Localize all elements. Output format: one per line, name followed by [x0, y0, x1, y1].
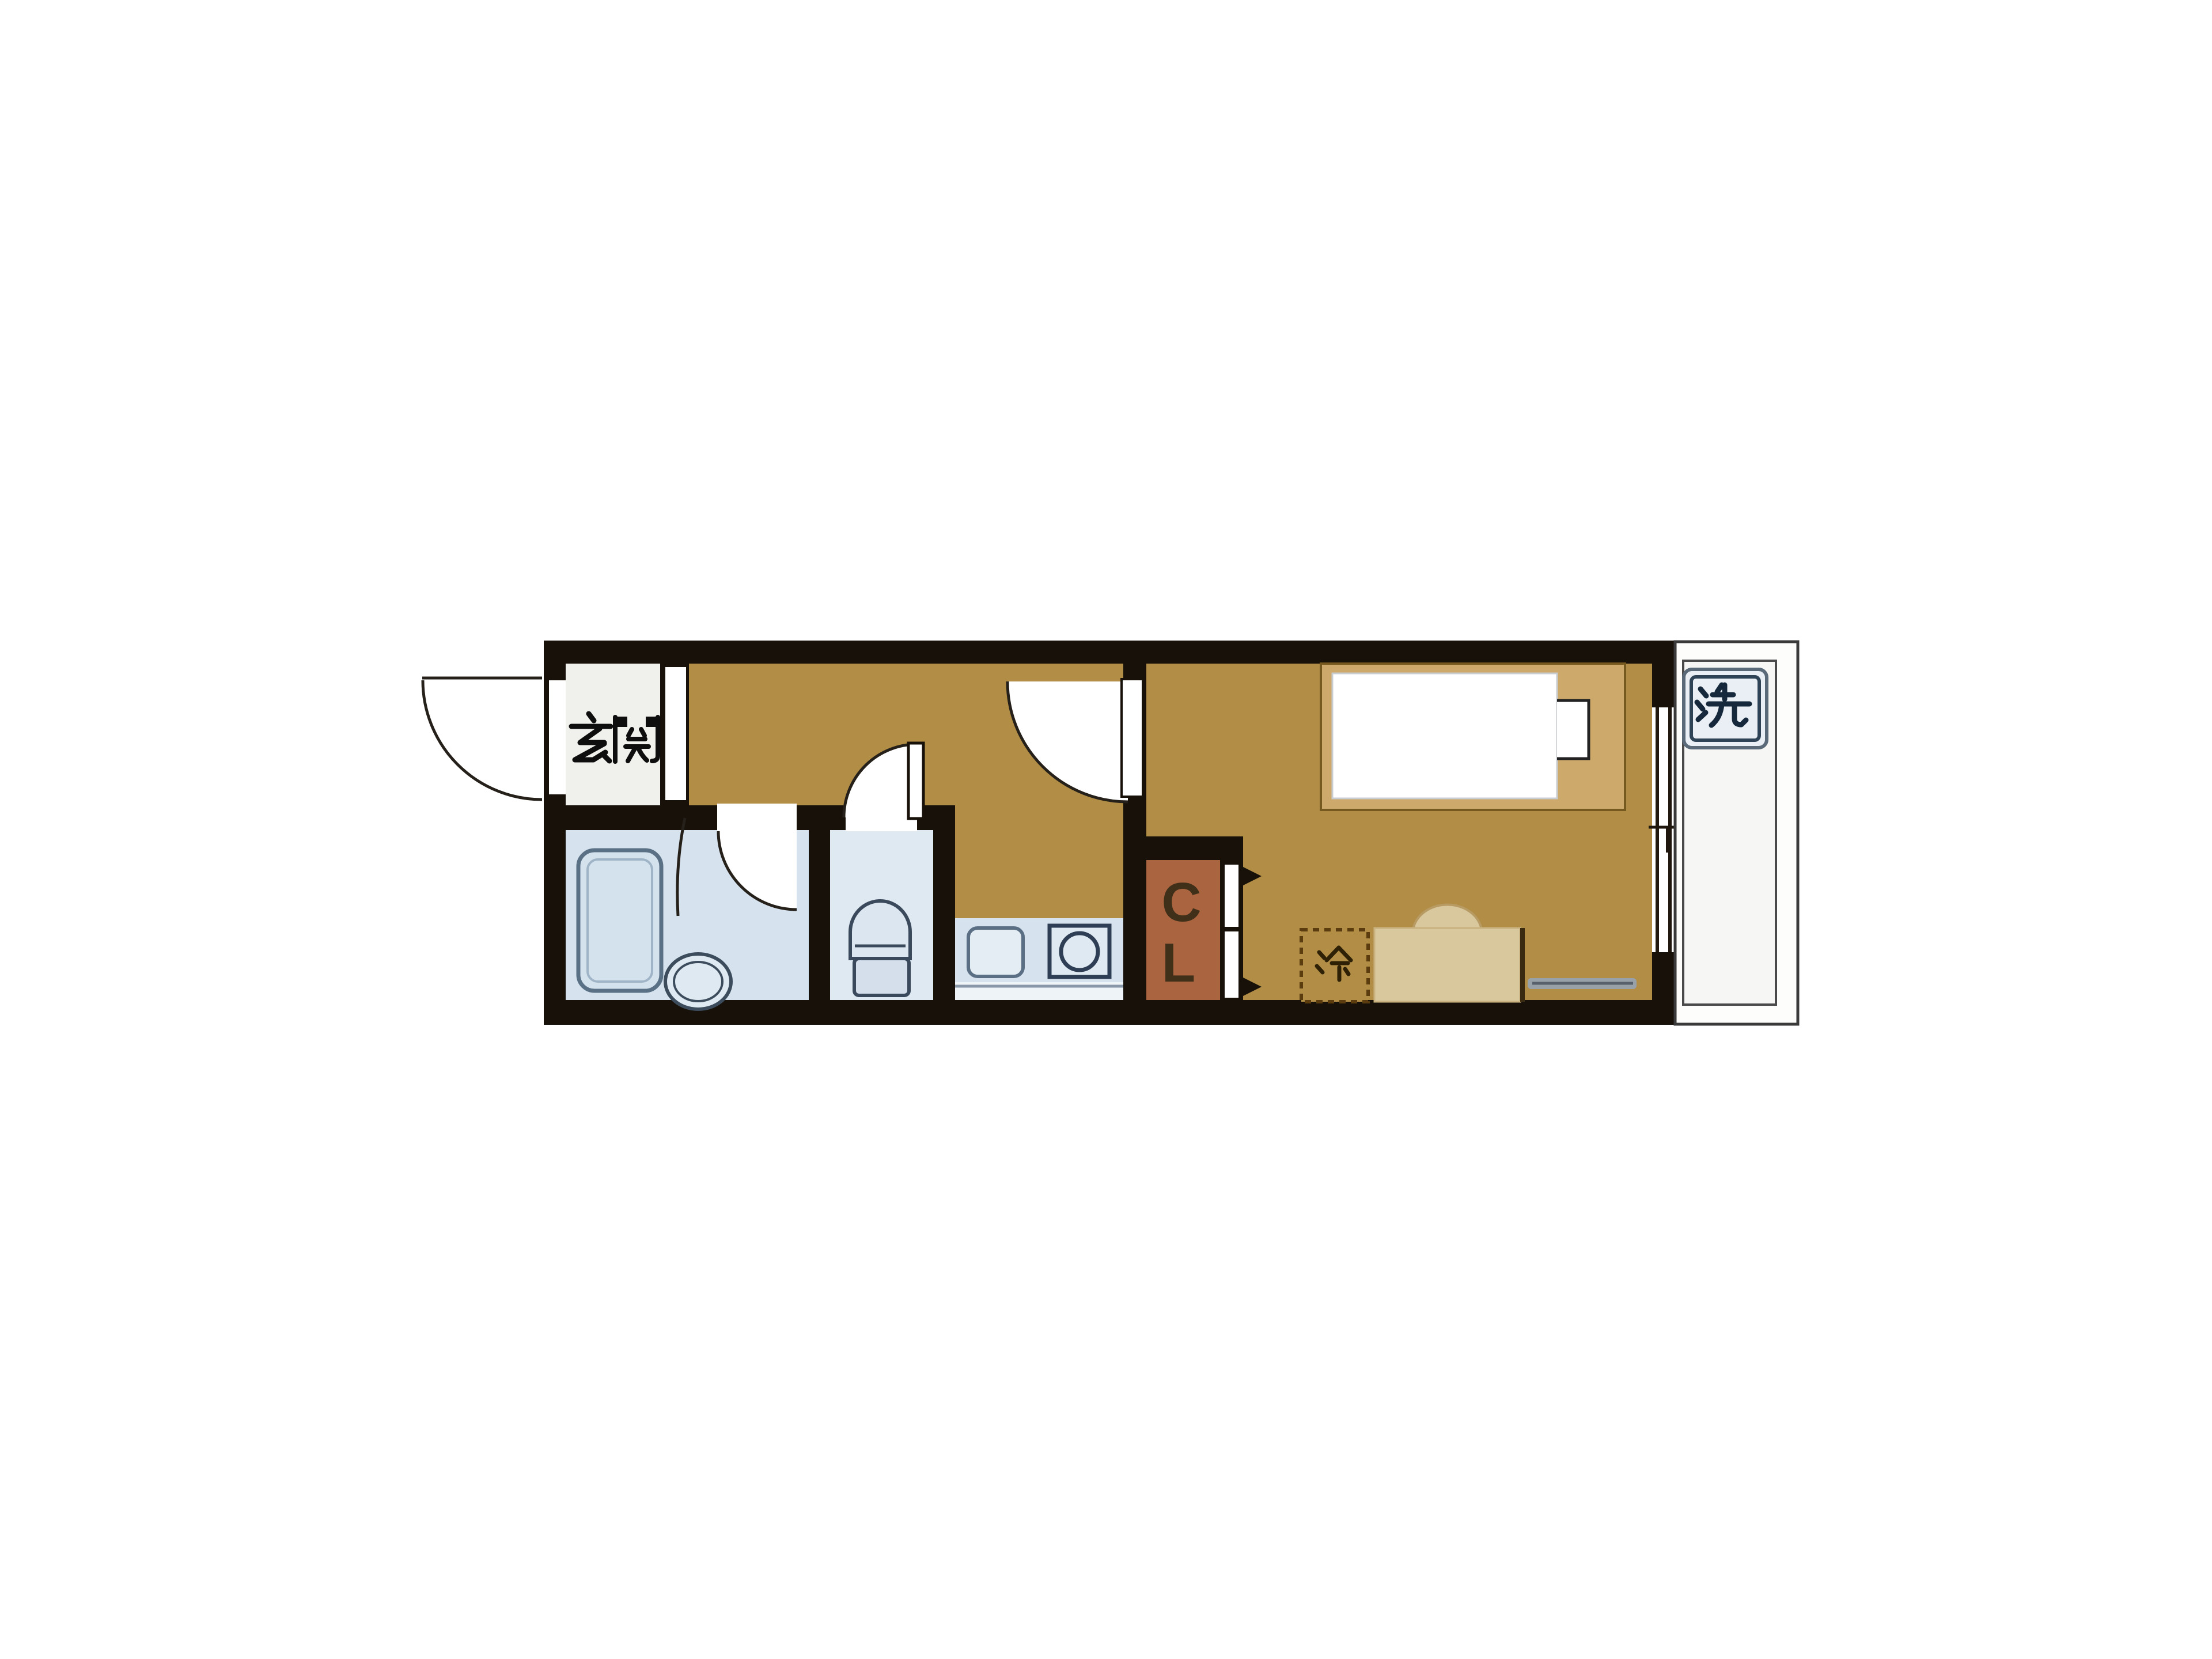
svg-text:L: L [1162, 932, 1196, 994]
svg-text:C: C [1161, 872, 1201, 933]
